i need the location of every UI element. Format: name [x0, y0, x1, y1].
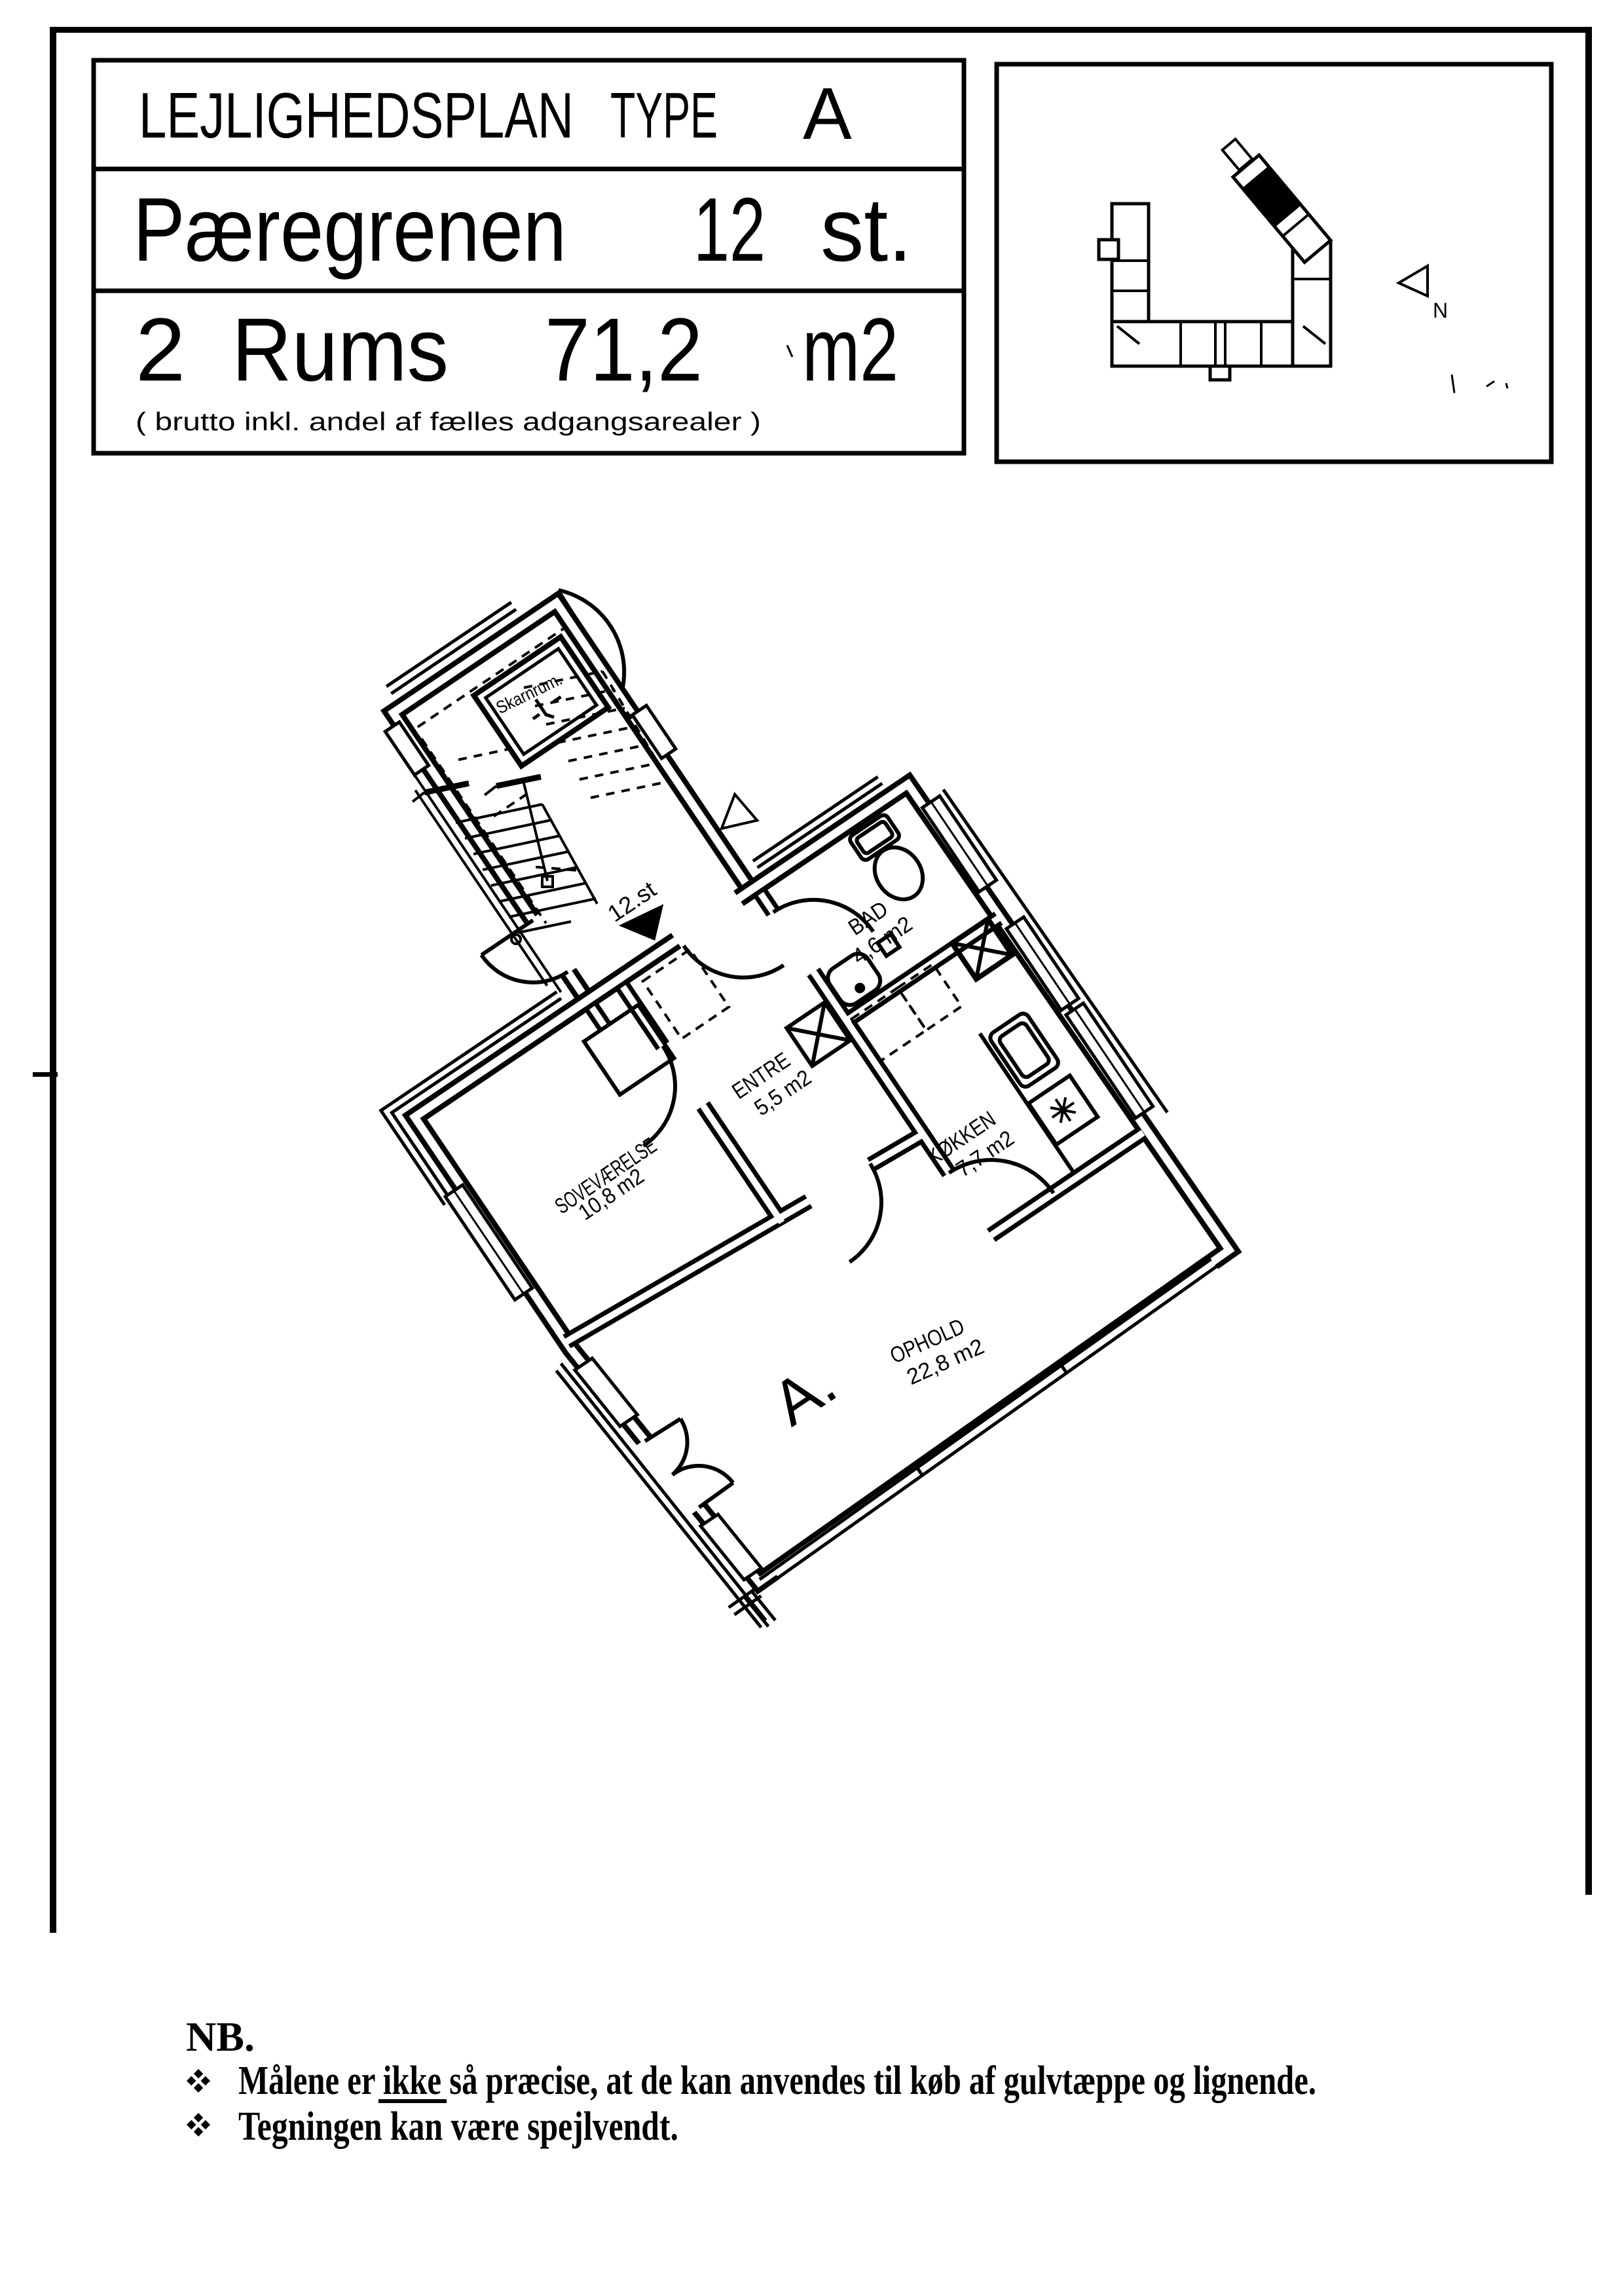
svg-text:2: 2: [136, 300, 185, 400]
svg-text:Rums: Rums: [232, 300, 449, 400]
svg-text:A: A: [803, 73, 852, 155]
svg-text:st.: st.: [821, 179, 912, 280]
svg-text:12: 12: [693, 179, 766, 280]
svg-text:m2: m2: [802, 300, 898, 400]
svg-text:NB.: NB.: [186, 2013, 255, 2060]
svg-text:( brutto inkl. andel af fæ: ( brutto inkl. andel af fælles adgangsar…: [136, 408, 761, 436]
svg-text:Pæregrenen: Pæregrenen: [133, 179, 566, 280]
svg-text:71,2: 71,2: [545, 300, 703, 400]
svg-text:N: N: [1433, 299, 1448, 322]
svg-text:LEJLIGHEDSPLAN: LEJLIGHEDSPLAN: [139, 79, 574, 151]
svg-text:Tegningen kan være spejlvendt.: Tegningen kan være spejlvendt.: [238, 2104, 678, 2149]
svg-text:Målene er ikke så præcise, at: Målene er ikke så præcise, at de kan anv…: [238, 2059, 1316, 2103]
svg-text:TYPE: TYPE: [610, 79, 718, 151]
